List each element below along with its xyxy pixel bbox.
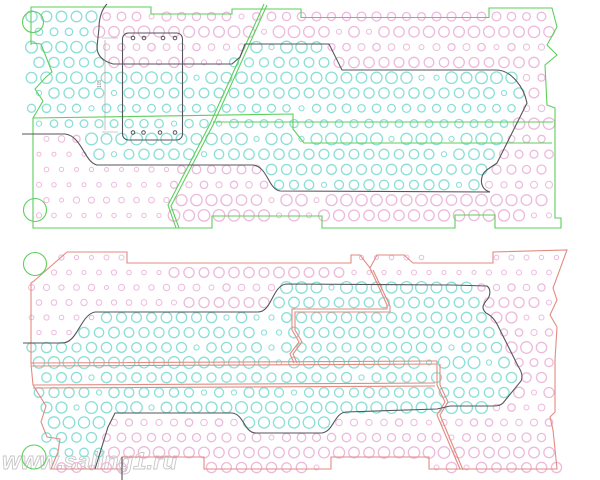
svg-text:105: 105 [97,79,103,88]
svg-text:www.saling1.ru: www.saling1.ru [2,448,177,475]
